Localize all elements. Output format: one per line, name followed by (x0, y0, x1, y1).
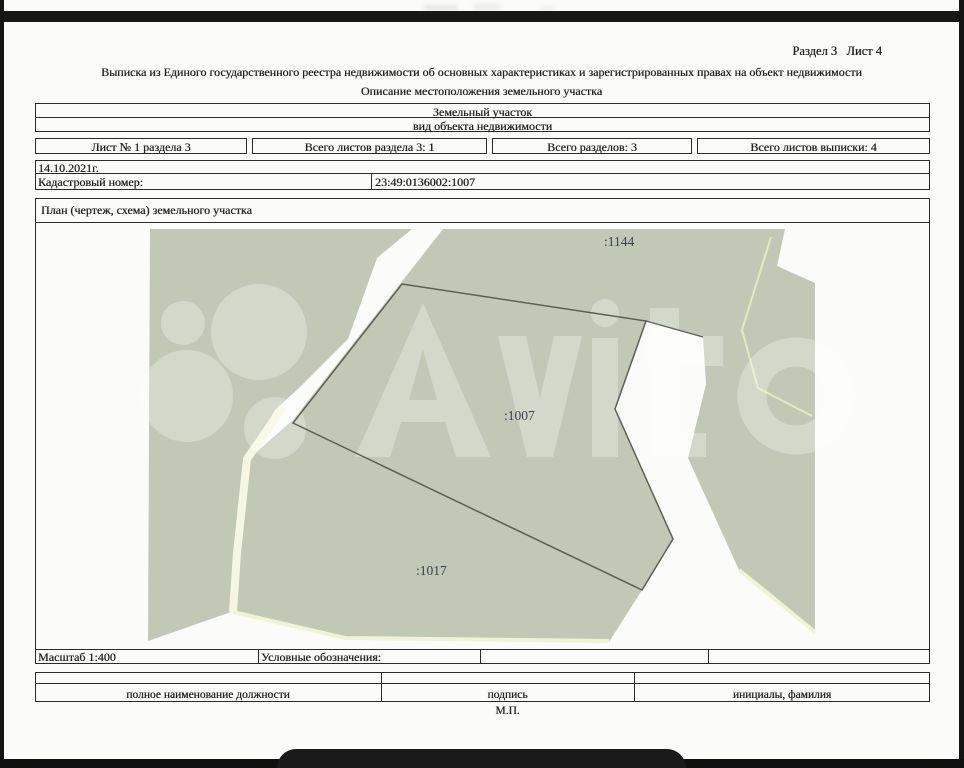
svg-text::1007: :1007 (504, 408, 535, 423)
svg-text::1144: :1144 (604, 234, 634, 249)
svg-text::1017: :1017 (416, 563, 447, 578)
